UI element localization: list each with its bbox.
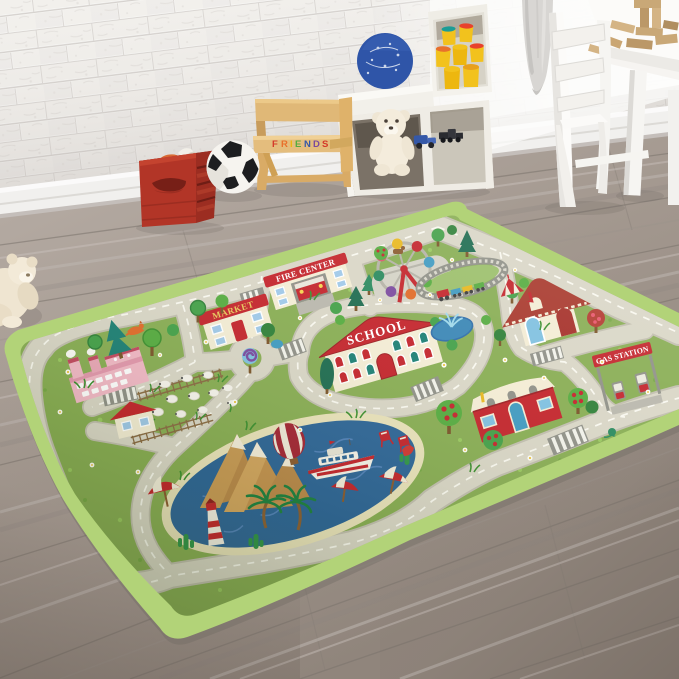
svg-text:N: N — [304, 139, 311, 150]
svg-text:I: I — [290, 139, 293, 150]
svg-text:D: D — [313, 139, 320, 150]
svg-text:S: S — [322, 139, 328, 150]
svg-text:E: E — [295, 139, 301, 150]
svg-text:F: F — [272, 139, 278, 150]
svg-text:R: R — [281, 139, 288, 150]
